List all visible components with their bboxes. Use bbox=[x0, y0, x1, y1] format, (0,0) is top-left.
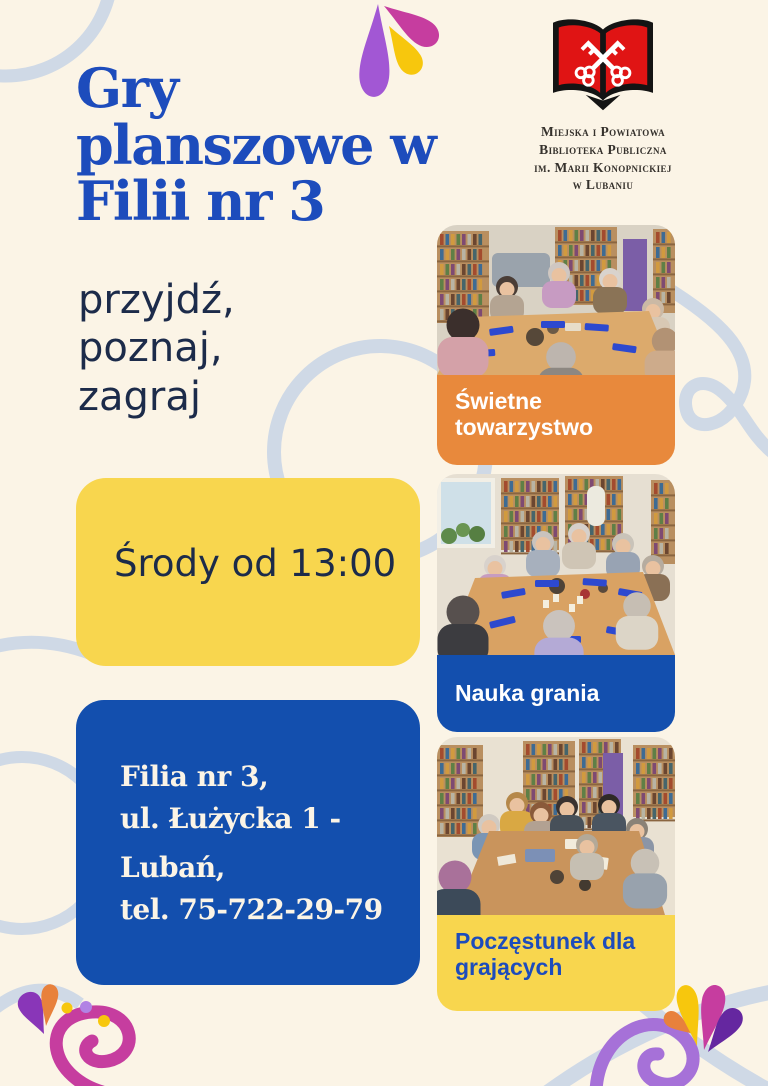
tagline-line: zagraj bbox=[78, 373, 235, 421]
photo-card-great-company: Świetne towarzystwo bbox=[437, 225, 675, 465]
poster: Gry planszowe w Filii nr 3 bbox=[0, 0, 768, 1086]
page-title: Gry planszowe w Filii nr 3 bbox=[76, 60, 438, 230]
contact-line: ul. Łużycka 1 - bbox=[120, 798, 420, 840]
photo-players-at-table-2 bbox=[437, 474, 675, 655]
photo-caption: Nauka grania bbox=[437, 655, 675, 732]
contact-line: tel. 75-722-29-79 bbox=[120, 889, 420, 931]
tagline-line: poznaj, bbox=[78, 324, 235, 372]
tagline-line: przyjdź, bbox=[78, 276, 235, 324]
open-book-keys-icon bbox=[545, 16, 661, 116]
contact-box: Filia nr 3, ul. Łużycka 1 - Lubań, tel. … bbox=[76, 700, 420, 985]
photo-caption: Poczęstunek dla grających bbox=[437, 915, 675, 1011]
library-logo: Miejska i Powiatowa Biblioteka Publiczna… bbox=[504, 16, 702, 194]
schedule-box: Środy od 13:00 bbox=[76, 478, 420, 666]
contact-line: Filia nr 3, bbox=[120, 756, 420, 798]
photo-card-refreshments: Poczęstunek dla grających bbox=[437, 737, 675, 1011]
contact-line: Lubań, bbox=[120, 847, 420, 889]
tagline: przyjdź, poznaj, zagraj bbox=[78, 276, 235, 421]
logo-org-name: Miejska i Powiatowa Biblioteka Publiczna… bbox=[504, 123, 702, 194]
photo-players-at-table-3 bbox=[437, 737, 675, 915]
photo-players-at-table-1 bbox=[437, 225, 675, 375]
schedule-text: Środy od 13:00 bbox=[76, 542, 396, 585]
photo-caption: Świetne towarzystwo bbox=[437, 375, 675, 465]
photo-card-learning-to-play: Nauka grania bbox=[437, 474, 675, 732]
